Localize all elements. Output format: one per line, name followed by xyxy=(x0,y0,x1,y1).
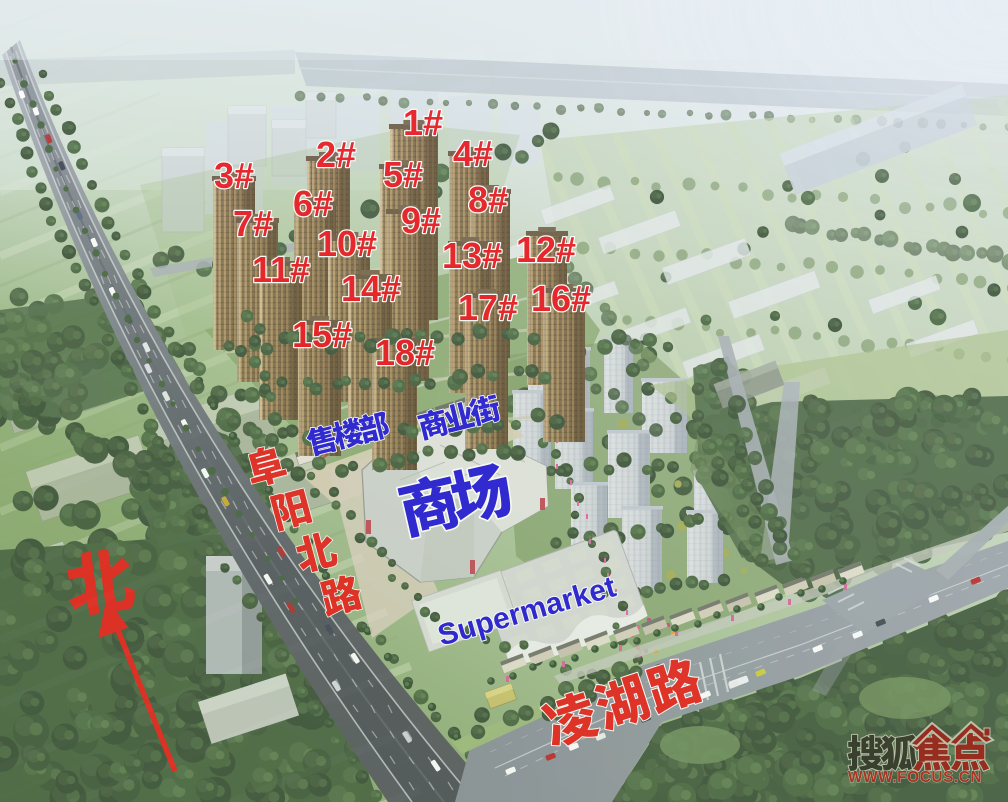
svg-text:7#: 7# xyxy=(233,203,273,244)
svg-text:4#: 4# xyxy=(453,133,493,174)
svg-text:10#: 10# xyxy=(317,223,377,264)
svg-text:5#: 5# xyxy=(383,154,423,195)
svg-text:9#: 9# xyxy=(401,200,441,241)
svg-text:17#: 17# xyxy=(458,287,518,328)
svg-text:WWW.FOCUS.CN: WWW.FOCUS.CN xyxy=(848,769,982,786)
svg-text:1#: 1# xyxy=(403,102,443,143)
svg-text:2#: 2# xyxy=(316,134,356,175)
svg-text:11#: 11# xyxy=(252,249,310,290)
svg-text:13#: 13# xyxy=(442,235,502,276)
svg-text:15#: 15# xyxy=(292,314,352,355)
svg-text:18#: 18# xyxy=(375,332,435,373)
svg-text:14#: 14# xyxy=(341,268,401,309)
svg-text:3#: 3# xyxy=(214,155,254,196)
svg-text:8#: 8# xyxy=(468,179,508,220)
svg-text:16#: 16# xyxy=(531,278,591,319)
svg-text:12#: 12# xyxy=(516,229,576,270)
svg-text:6#: 6# xyxy=(293,183,333,224)
